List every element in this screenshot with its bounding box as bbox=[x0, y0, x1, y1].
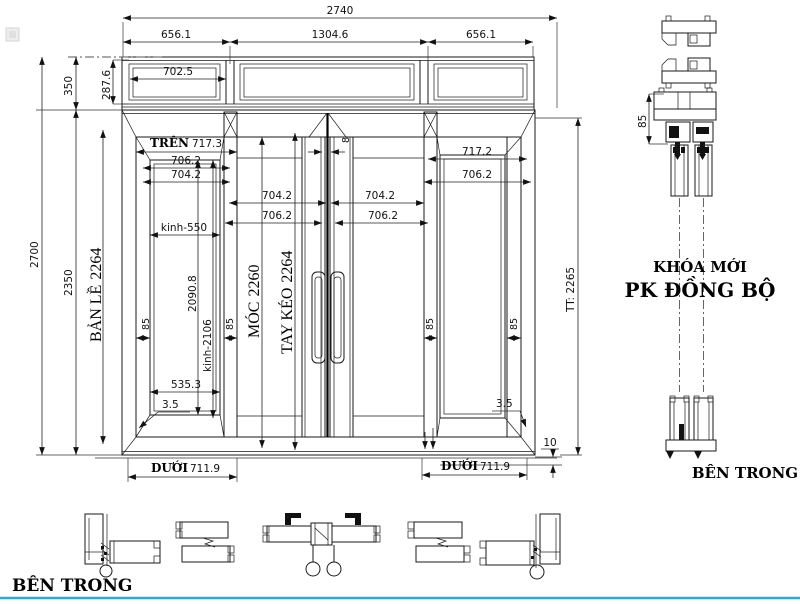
dim-left-top-width: 717.3 bbox=[192, 138, 222, 150]
sections-horizontal: BÊN TRONG bbox=[12, 513, 560, 596]
drawing-page: 2740 656.1 1304.6 656.1 702.5 287.6 350 … bbox=[0, 0, 800, 604]
dim-total-height: 2700 bbox=[29, 241, 41, 268]
note-synchronized-accessories: PK ĐỒNG BỘ bbox=[625, 275, 776, 302]
watermark-mark bbox=[6, 28, 19, 41]
head-profile-mirror bbox=[662, 58, 716, 88]
pull-handle-right bbox=[331, 272, 344, 363]
mullion-right bbox=[424, 112, 437, 437]
hook-value: 2260 bbox=[246, 265, 263, 297]
lock-mechanism bbox=[666, 122, 713, 160]
door-shop-drawing: 2740 656.1 1304.6 656.1 702.5 287.6 350 … bbox=[0, 0, 800, 604]
dim-handle-height: TAY KÉO2264 bbox=[277, 251, 296, 354]
dim-right-stile-right: 85 bbox=[509, 318, 520, 330]
hinge-value: 2264 bbox=[88, 248, 105, 280]
handle-label: TAY KÉO bbox=[277, 288, 296, 354]
dim-section-depth: 85 bbox=[637, 115, 649, 128]
meeting-stile-section bbox=[263, 513, 380, 576]
handle-knob-right bbox=[327, 562, 341, 576]
dim-bottom-left: 711.9 bbox=[190, 463, 220, 475]
dims-panel-right: 717.2 706.2 85 85 3.5 DƯỚI 711.9 10 TT: … bbox=[422, 118, 582, 480]
hinge-knuckle-right bbox=[530, 565, 544, 579]
caption-inside-bottom: BÊN TRONG bbox=[12, 575, 132, 596]
dim-right-width2: 706.2 bbox=[462, 169, 492, 181]
handle-knob-left bbox=[306, 562, 320, 576]
dim-transom-glass-height: 287.6 bbox=[101, 70, 113, 100]
caption-inside-right: BÊN TRONG bbox=[692, 464, 798, 482]
dim-transom-left: 656.1 bbox=[161, 29, 191, 41]
mullion-left bbox=[224, 112, 237, 437]
transom bbox=[122, 57, 534, 110]
dim-transom-glass-width: 702.5 bbox=[163, 66, 193, 78]
dim-transom-height: 350 bbox=[63, 76, 75, 96]
head-profile bbox=[662, 16, 716, 46]
dim-hinge-height: BẢN LỀ2264 bbox=[86, 248, 105, 342]
dim-left-stile-right: 85 bbox=[225, 318, 236, 330]
handle-value: 2264 bbox=[279, 251, 296, 283]
sill-profile bbox=[666, 396, 716, 459]
dim-leaf-a-width1: 704.2 bbox=[262, 190, 292, 202]
dim-leaf-a-width2: 706.2 bbox=[262, 210, 292, 222]
dim-transom-middle: 1304.6 bbox=[312, 29, 349, 41]
interlock-section-right bbox=[408, 522, 470, 562]
dim-leaf-b-width2: 706.2 bbox=[368, 210, 398, 222]
section-vertical: 85 KHÓA MỚI PK ĐỒNG BỘ BÊN TRONG bbox=[625, 16, 799, 482]
dim-right-top-width: 717.2 bbox=[462, 146, 492, 158]
jamb-section-right bbox=[480, 514, 560, 579]
note-new-lock: KHÓA MỚI bbox=[653, 258, 747, 276]
track-assembly bbox=[654, 88, 716, 120]
dim-left-width1: 706.2 bbox=[171, 155, 201, 167]
dim-leaf-b-width1: 704.2 bbox=[365, 190, 395, 202]
dim-bottom-right: 711.9 bbox=[480, 461, 510, 473]
dim-left-width2: 704.2 bbox=[171, 169, 201, 181]
label-bottom-left: DƯỚI bbox=[151, 459, 188, 475]
dim-left-bottom-width: 535.3 bbox=[171, 379, 201, 391]
dim-door-height: 2350 bbox=[63, 269, 75, 296]
dim-left-stile-left: 85 bbox=[141, 318, 152, 330]
dim-left-glass-height: 2090.8 bbox=[187, 275, 199, 312]
dim-meeting-gap: 8 bbox=[341, 137, 352, 143]
dim-transom-right: 656.1 bbox=[466, 29, 496, 41]
hook-label: MÓC bbox=[244, 302, 263, 338]
dim-overall-width: 2740 bbox=[327, 5, 354, 17]
dim-left-glass-width: kinh-550 bbox=[161, 222, 207, 234]
label-bottom-right: DƯỚI bbox=[441, 457, 478, 473]
sliding-leaves bbox=[237, 113, 424, 437]
dim-right-stile-left: 85 bbox=[425, 318, 436, 330]
interlock-section-left bbox=[176, 522, 234, 562]
pull-handle-left bbox=[312, 272, 325, 363]
dims-panel-left: TRÊN 717.3 706.2 704.2 kinh-550 2090.8 k… bbox=[128, 135, 237, 482]
dim-right-gap: 3.5 bbox=[496, 398, 513, 410]
dim-left-glass-height2: kinh-2106 bbox=[202, 319, 214, 372]
hinge-label: BẢN LỀ bbox=[86, 285, 105, 342]
dim-hook-height: MÓC2260 bbox=[244, 265, 263, 338]
jamb-section-left bbox=[85, 514, 160, 577]
dim-overall-leaf-height: TT: 2265 bbox=[565, 267, 577, 313]
dim-track-height: 10 bbox=[543, 437, 556, 449]
label-top: TRÊN bbox=[150, 135, 189, 150]
dims-left: 2700 2350 BẢN LỀ2264 bbox=[29, 57, 122, 455]
dim-left-gap: 3.5 bbox=[162, 399, 179, 411]
